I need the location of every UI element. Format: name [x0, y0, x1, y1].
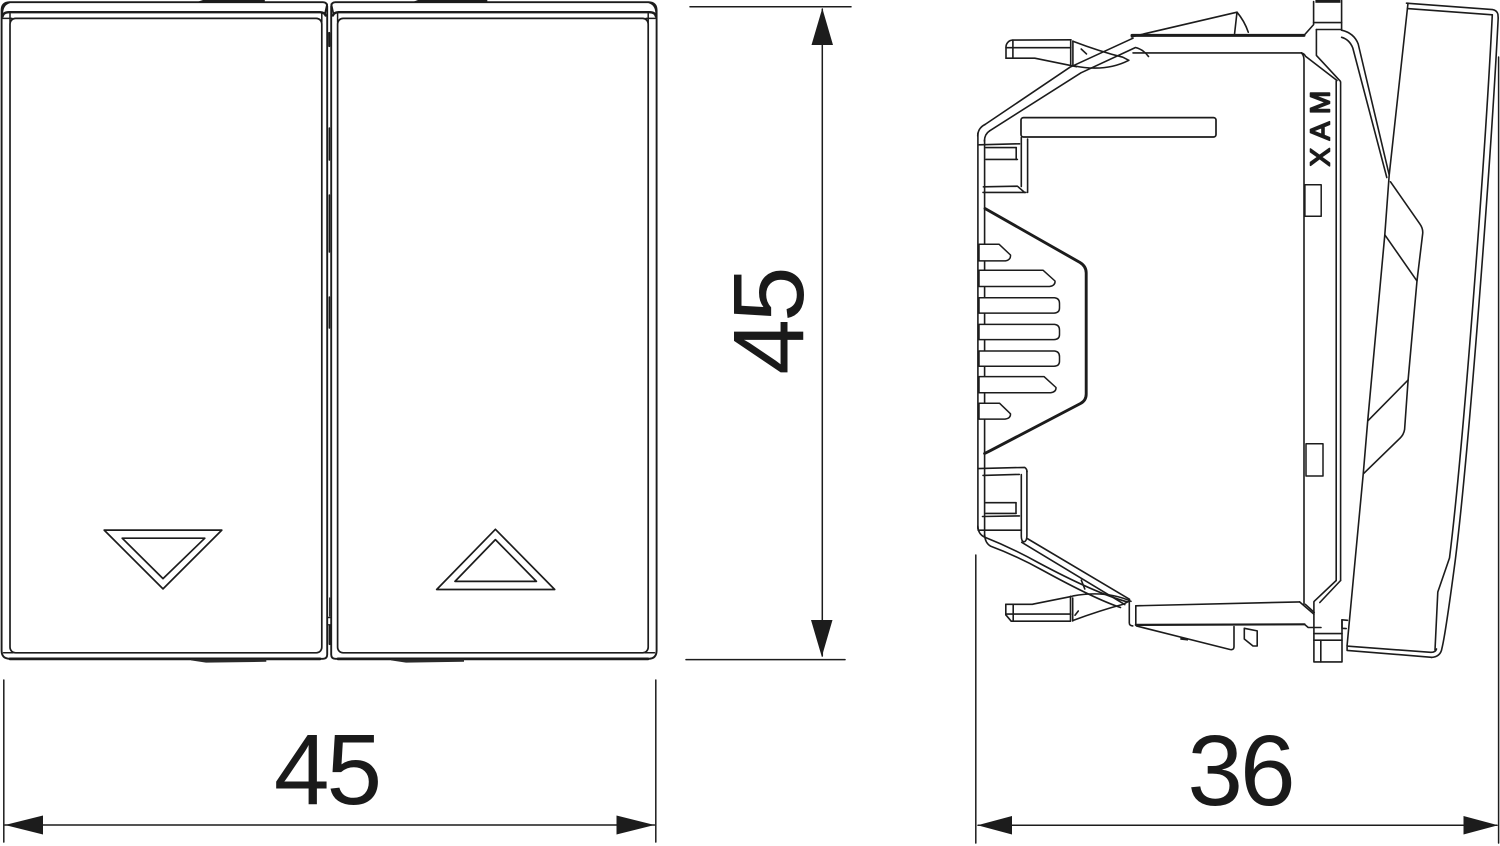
- svg-text:45: 45: [274, 714, 379, 826]
- svg-text:36: 36: [1187, 715, 1292, 827]
- svg-text:XAM: XAM: [1305, 83, 1336, 166]
- svg-text:45: 45: [713, 269, 825, 374]
